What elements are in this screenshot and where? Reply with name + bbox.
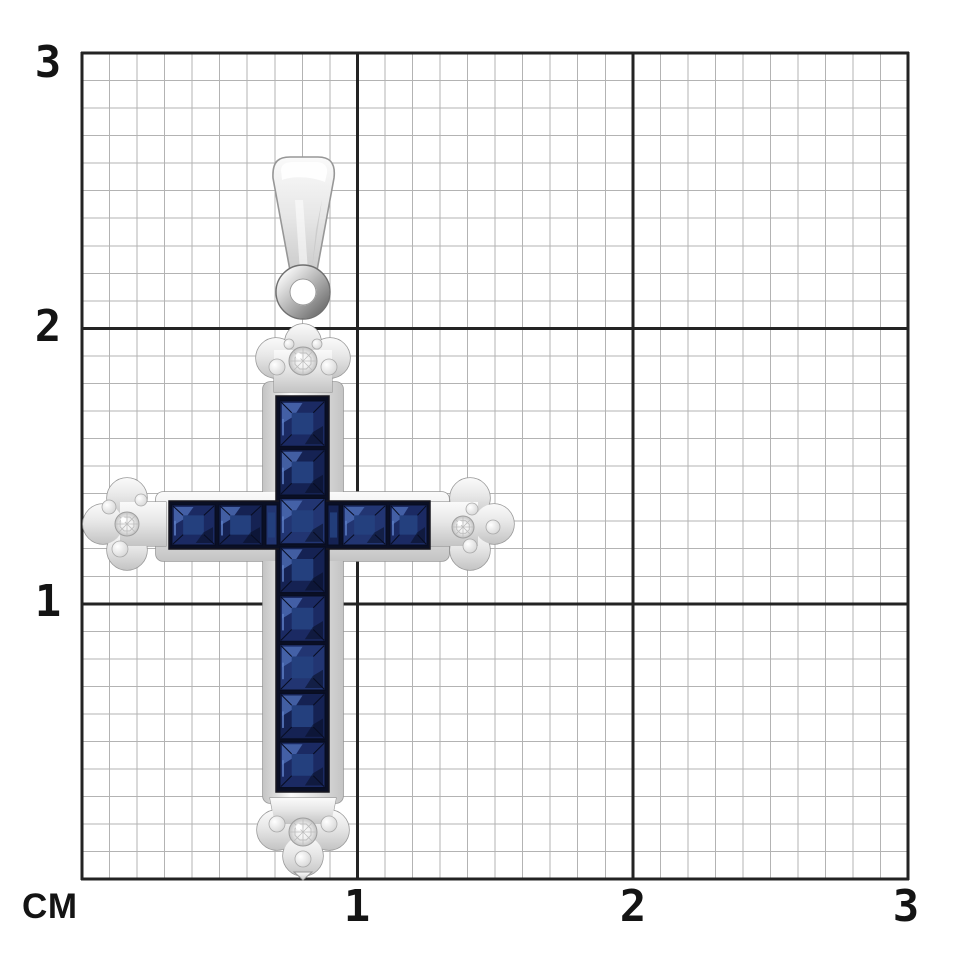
sapphire-stone [279,498,326,545]
sapphire-stone [389,504,428,546]
metal-bead [284,339,294,349]
sapphire-stone [279,644,326,691]
sapphire-stone [342,504,387,546]
metal-bead [486,520,500,534]
metal-bead [463,539,477,553]
left-trefoil [83,478,166,570]
grid-and-pendant-canvas [0,0,970,970]
cross-pendant [83,157,514,880]
x-axis-label-3: 3 [884,882,928,932]
sapphire-stone [279,693,326,740]
sapphire-stone [279,595,326,642]
y-axis-label-2: 2 [26,302,70,352]
y-axis-label-3: 3 [26,38,70,88]
sapphire-stone [265,504,278,546]
metal-bead [466,503,478,515]
diamond-stone [289,347,317,375]
metal-bead [321,816,337,832]
metal-bead [321,359,337,375]
y-axis-label-1: 1 [26,577,70,627]
sapphire-stone [279,741,326,788]
product-image: 3 2 1 1 2 3 СМ [0,0,970,970]
x-axis-label-1: 1 [335,882,379,932]
x-axis-label-2: 2 [611,882,655,932]
sapphire-stone [279,449,326,496]
jump-ring [276,265,330,319]
unit-label: СМ [22,884,82,930]
measure-grid [81,52,909,880]
diamond-stone [289,818,317,846]
metal-bead [269,359,285,375]
sapphire-stone [279,400,326,447]
metal-bead [269,816,285,832]
sapphire-stone [327,504,340,546]
sapphire-stone [171,504,216,546]
sapphire-stone [279,546,326,593]
diamond-stone [452,516,474,538]
metal-bead [112,541,128,557]
metal-bead [135,494,147,506]
metal-bead [312,339,322,349]
metal-bead [295,851,311,867]
metal-bead [102,500,116,514]
bottom-trefoil [257,798,349,880]
diamond-stone [115,512,139,536]
sapphire-stone [218,504,263,546]
